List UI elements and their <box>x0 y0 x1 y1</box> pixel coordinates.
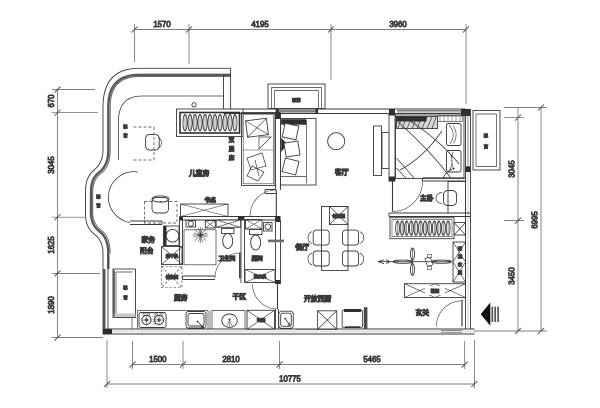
svg-text:干区: 干区 <box>233 293 247 301</box>
svg-text:3450: 3450 <box>508 267 517 285</box>
svg-text:3960: 3960 <box>389 20 407 29</box>
svg-text:飘: 飘 <box>483 132 489 139</box>
svg-text:5465: 5465 <box>363 355 381 364</box>
svg-text:卫生间: 卫生间 <box>219 255 236 263</box>
svg-text:飘窗: 飘窗 <box>291 97 300 104</box>
svg-text:到: 到 <box>458 245 462 252</box>
svg-text:柜: 柜 <box>457 269 463 276</box>
svg-text:鞋柜: 鞋柜 <box>431 288 440 295</box>
svg-text:餐边柜: 餐边柜 <box>332 213 346 220</box>
svg-text:670: 670 <box>47 94 56 108</box>
svg-text:1625: 1625 <box>47 236 56 254</box>
svg-text:3045: 3045 <box>47 156 56 174</box>
svg-text:双: 双 <box>229 137 235 144</box>
svg-text:烘干机: 烘干机 <box>166 253 179 260</box>
svg-text:1500: 1500 <box>149 355 167 364</box>
svg-text:1890: 1890 <box>47 296 56 314</box>
svg-text:厨房: 厨房 <box>174 293 188 302</box>
svg-text:电器: 电器 <box>257 317 266 324</box>
svg-text:飘: 飘 <box>122 284 128 291</box>
svg-text:主卧: 主卧 <box>420 194 434 203</box>
svg-text:储物柜: 储物柜 <box>165 274 179 281</box>
svg-text:厕间: 厕间 <box>252 255 264 263</box>
svg-text:3045: 3045 <box>508 160 517 178</box>
svg-text:书桌: 书桌 <box>205 196 217 204</box>
svg-text:10775: 10775 <box>279 375 301 384</box>
svg-text:儿童房: 儿童房 <box>188 169 210 178</box>
svg-text:阳台: 阳台 <box>140 246 154 255</box>
svg-text:窗: 窗 <box>96 202 100 209</box>
svg-text:2810: 2810 <box>222 355 240 364</box>
svg-text:窗: 窗 <box>484 143 488 150</box>
svg-text:层: 层 <box>229 145 235 153</box>
svg-text:4195: 4195 <box>251 20 269 29</box>
svg-text:窗: 窗 <box>123 132 127 139</box>
svg-text:床: 床 <box>229 154 235 162</box>
svg-text:家务: 家务 <box>142 235 156 244</box>
svg-text:飘: 飘 <box>122 123 128 130</box>
svg-text:1570: 1570 <box>153 20 171 29</box>
svg-text:6995: 6995 <box>531 211 540 229</box>
svg-text:玄关: 玄关 <box>416 308 430 317</box>
svg-text:客厅: 客厅 <box>334 168 349 177</box>
svg-text:窗: 窗 <box>123 294 127 301</box>
svg-text:开放西厨: 开放西厨 <box>304 294 331 303</box>
svg-text:洗衣机: 洗衣机 <box>254 273 267 280</box>
svg-text:餐厅: 餐厅 <box>295 243 310 252</box>
svg-text:飘: 飘 <box>95 193 101 200</box>
